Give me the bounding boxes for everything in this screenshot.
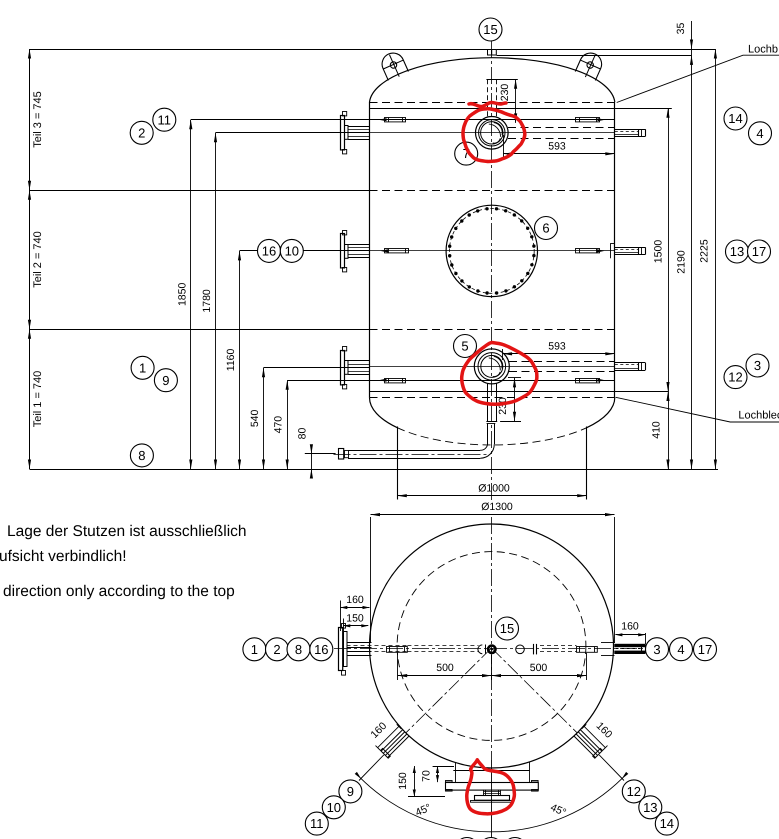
- svg-text:1160: 1160: [225, 349, 237, 372]
- svg-text:Lochblec: Lochblec: [738, 409, 779, 421]
- svg-text:10: 10: [327, 800, 341, 815]
- svg-text:1: 1: [251, 642, 258, 657]
- svg-text:70: 70: [421, 770, 433, 782]
- svg-text:2: 2: [273, 642, 280, 657]
- svg-text:3: 3: [653, 642, 660, 657]
- svg-text:17: 17: [752, 244, 766, 259]
- svg-text:Lage der Stutzen ist ausschlie: Lage der Stutzen ist ausschließlich: [7, 523, 247, 540]
- svg-text:Lochb: Lochb: [748, 44, 778, 56]
- svg-text:16: 16: [262, 243, 276, 258]
- svg-text:16: 16: [314, 642, 328, 657]
- svg-text:500: 500: [530, 662, 548, 674]
- svg-text:160: 160: [346, 594, 364, 606]
- svg-text:13: 13: [643, 800, 657, 815]
- svg-text:10: 10: [285, 243, 299, 258]
- svg-text:230: 230: [499, 84, 511, 102]
- svg-text:593: 593: [548, 341, 566, 353]
- svg-text:17: 17: [698, 642, 712, 657]
- svg-text:14: 14: [728, 111, 742, 126]
- svg-text:Teil 3 = 745: Teil 3 = 745: [32, 91, 44, 148]
- svg-text:6: 6: [542, 221, 549, 236]
- svg-text:11: 11: [310, 816, 324, 831]
- svg-text:2: 2: [138, 125, 145, 140]
- svg-text:1780: 1780: [201, 289, 213, 313]
- svg-text:1500: 1500: [653, 240, 665, 264]
- svg-text:500: 500: [436, 662, 454, 674]
- svg-text:150: 150: [346, 613, 364, 625]
- svg-text:160: 160: [621, 621, 639, 633]
- svg-text:80: 80: [297, 428, 309, 440]
- svg-text:11: 11: [158, 112, 172, 127]
- svg-text:4: 4: [677, 642, 684, 657]
- svg-text:1: 1: [139, 360, 146, 375]
- svg-text:2225: 2225: [699, 239, 711, 263]
- svg-text:Teil 2 = 740: Teil 2 = 740: [32, 231, 44, 288]
- svg-text:540: 540: [249, 409, 261, 427]
- svg-text:Teil 1 = 740: Teil 1 = 740: [32, 371, 44, 428]
- svg-text:593: 593: [548, 141, 566, 153]
- svg-text:direction only according to th: direction only according to the top: [3, 583, 235, 600]
- svg-text:4: 4: [756, 126, 763, 141]
- svg-text:Ø1300: Ø1300: [481, 501, 513, 513]
- svg-text:3: 3: [754, 358, 761, 373]
- svg-text:410: 410: [651, 421, 663, 439]
- svg-text:5: 5: [461, 339, 468, 354]
- svg-text:12: 12: [728, 370, 742, 385]
- svg-text:15: 15: [500, 621, 514, 636]
- svg-text:9: 9: [347, 784, 354, 799]
- svg-text:14: 14: [660, 816, 674, 831]
- svg-text:35: 35: [675, 23, 687, 35]
- svg-text:15: 15: [483, 22, 497, 37]
- svg-text:150: 150: [397, 772, 409, 790]
- svg-text:8: 8: [295, 642, 302, 657]
- svg-text:8: 8: [138, 448, 145, 463]
- svg-text:12: 12: [627, 784, 641, 799]
- svg-text:2190: 2190: [676, 250, 688, 274]
- svg-text:9: 9: [162, 373, 169, 388]
- svg-text:ufsicht verbindlich!: ufsicht verbindlich!: [0, 548, 127, 565]
- svg-text:13: 13: [730, 244, 744, 259]
- svg-text:Ø1000: Ø1000: [478, 483, 510, 495]
- svg-text:470: 470: [273, 416, 285, 434]
- svg-text:1850: 1850: [176, 283, 188, 307]
